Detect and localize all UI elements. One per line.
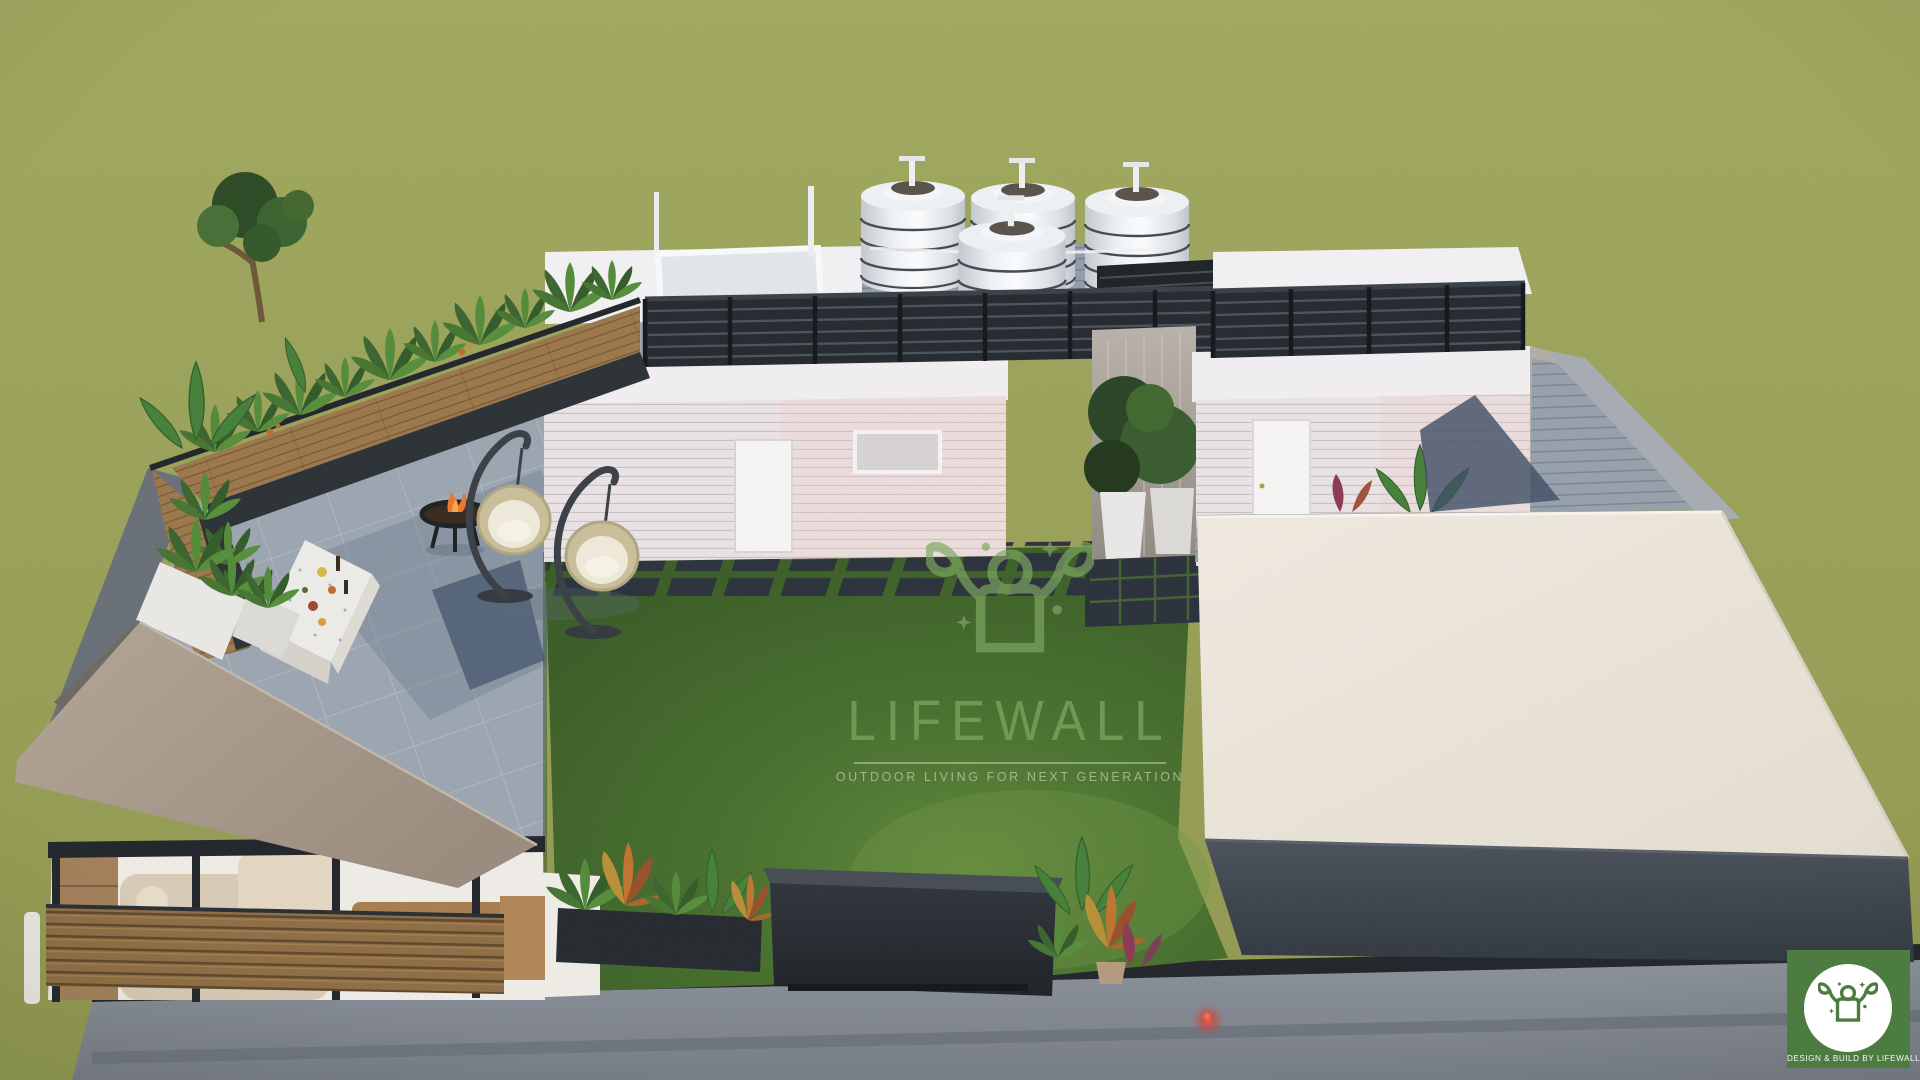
badge-label: DESIGN & BUILD BY LIFEWALL	[1787, 1054, 1910, 1063]
lifewall-sprout-person-icon	[1818, 981, 1878, 1035]
rooftop-render: LIFEWALL OUTDOOR LIVING FOR NEXT GENERAT…	[0, 0, 1920, 1080]
badge-logo-circle	[1804, 964, 1892, 1052]
scene-illustration	[0, 0, 1920, 1080]
lifewall-badge: DESIGN & BUILD BY LIFEWALL	[1787, 950, 1910, 1068]
vignette	[0, 0, 1920, 1080]
